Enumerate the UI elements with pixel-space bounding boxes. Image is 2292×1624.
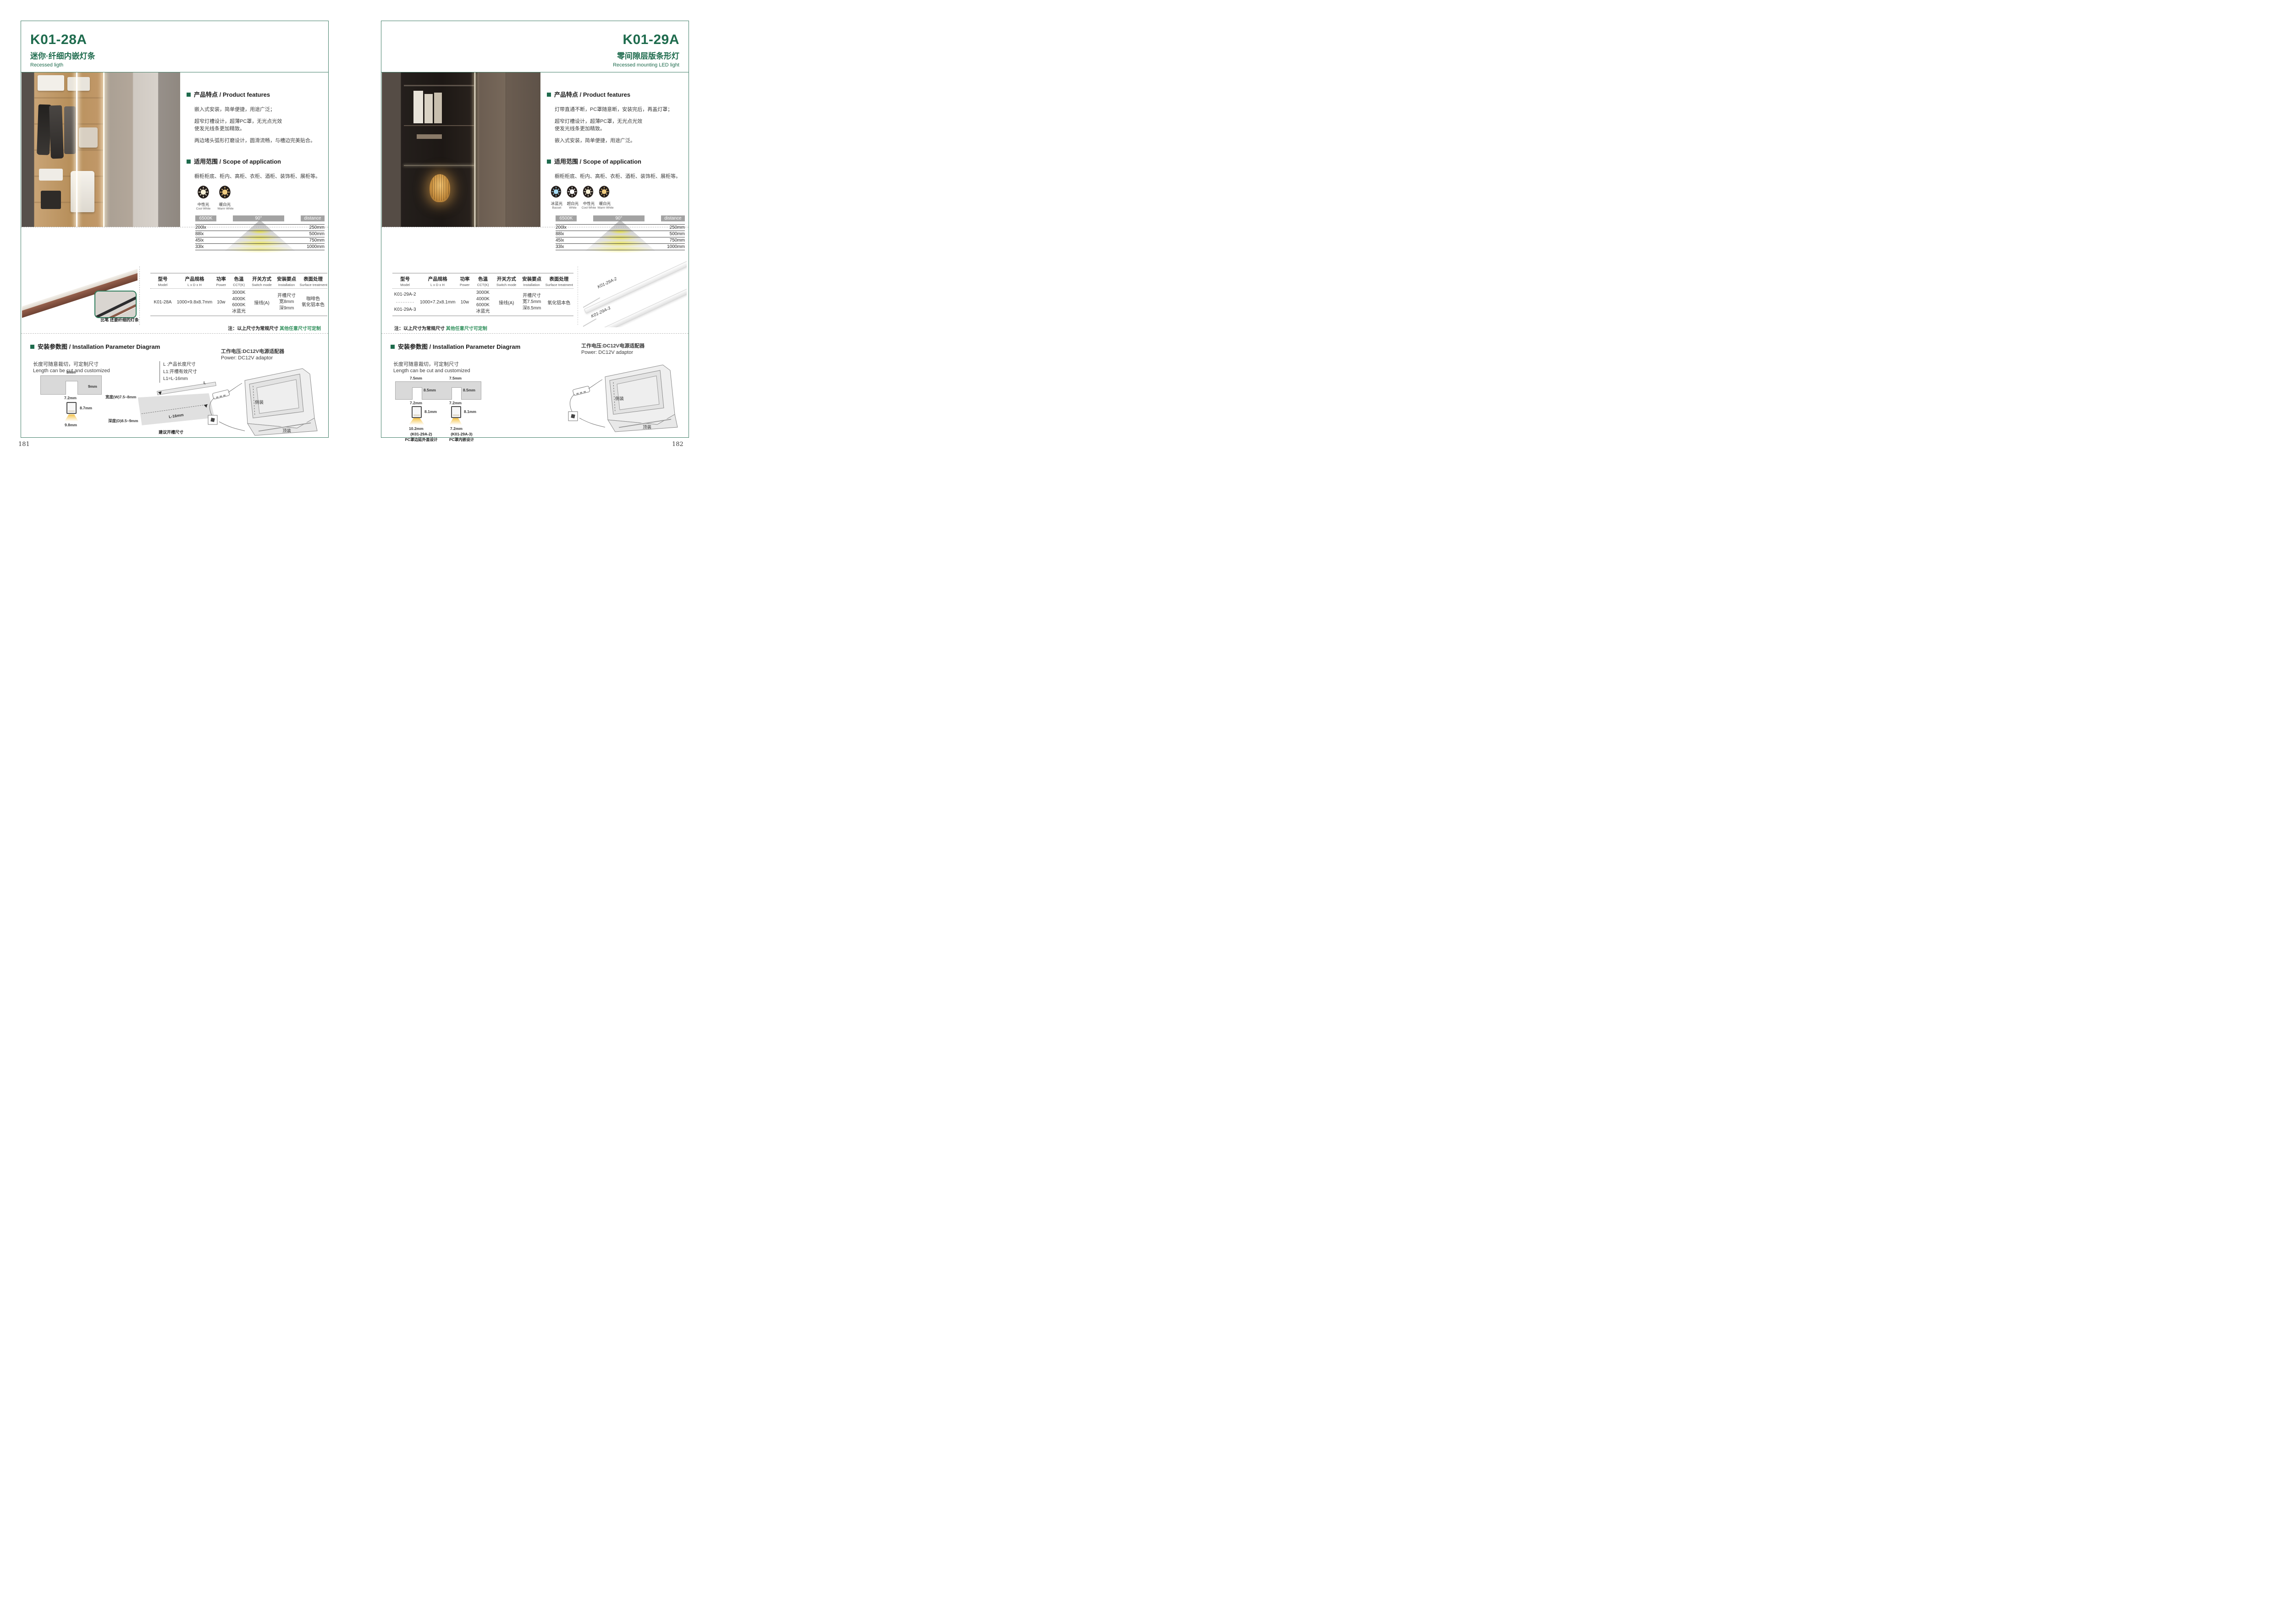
- feature-line: 灯带直通不断，PC罩随意断，安装完后，再盖灯罩；: [555, 105, 672, 113]
- lux-value: 200lx: [556, 225, 567, 230]
- dim-profile-height: 8.7mm: [80, 406, 92, 410]
- distance-row: 45lx750mm: [195, 237, 325, 243]
- power-cn: 工作电压:DC12V电源适配器: [581, 342, 645, 349]
- scope-heading: 适用范围 / Scope of application: [187, 157, 281, 165]
- col-header-power: 功率Power: [214, 275, 228, 287]
- photo-folded-clothes: [39, 169, 63, 181]
- distance-value: 1000mm: [667, 244, 685, 249]
- cct-badge: 6500K: [195, 215, 216, 221]
- table-border: [150, 315, 327, 316]
- panel-slot: [66, 381, 78, 395]
- size-note: 注：以上尺寸为常规尺寸 其他任意尺寸可定制: [228, 325, 321, 331]
- photo-object: [417, 134, 442, 139]
- col-header-size: 产品规格L x D x H: [418, 275, 457, 287]
- lux-value: 88lx: [556, 231, 564, 237]
- dim-slot-width: 8mm: [66, 370, 76, 374]
- feature-line: 超窄灯槽设计，超薄PC罩，无光点光效: [555, 117, 642, 125]
- photo-towels: [38, 75, 65, 91]
- dim-slot-width: 7.5mm: [410, 376, 422, 380]
- page-number-left: 181: [18, 441, 30, 448]
- model-divider: [396, 302, 414, 303]
- profile-section: [66, 402, 77, 414]
- spec-table: 型号Model 产品规格L x D x H 功率Power 色温CCT(K) 开…: [150, 273, 327, 316]
- spec-table: 型号Model 产品规格L x D x H 功率Power 色温CCT(K) 开…: [392, 273, 573, 316]
- profile-diffuser: [413, 414, 420, 416]
- photo-coat: [64, 106, 75, 154]
- col-header-surface: 表面处理Surface treatment: [299, 275, 327, 287]
- features-heading-label: 产品特点 / Product features: [554, 91, 630, 98]
- length-legend: L :产品长度尺寸 L1:开槽有效尺寸 L1=L-16mm: [160, 361, 197, 383]
- dim-slot-width: 7.5mm: [449, 376, 462, 380]
- section-divider: [21, 333, 328, 334]
- cabinet-diagram: 侧装 顶装: [566, 360, 688, 435]
- table-border: [392, 315, 573, 316]
- bullet-square-icon: [547, 160, 551, 164]
- photo-led-strip-glow: [474, 72, 475, 227]
- dim-profile-width: 7.2mm: [449, 401, 462, 405]
- lux-value: 200lx: [195, 225, 206, 230]
- light-mode-label-cn: 中性光: [195, 202, 211, 207]
- col-header-power: 功率Power: [457, 275, 472, 287]
- page-left-title-block: K01-28A 迷你·纤细内嵌灯条 Recessed ligth: [30, 33, 95, 68]
- photo-bag: [79, 127, 98, 148]
- bulb-icon: [597, 184, 612, 200]
- photo-book: [434, 93, 442, 123]
- distance-badge: distance: [301, 215, 325, 221]
- xsec-caption-model: (K01-29A-2): [401, 432, 442, 436]
- lux-value: 33lx: [556, 244, 564, 249]
- cct-badge: 6500K: [556, 215, 577, 221]
- col-header-cct: 色温CCT(K): [472, 275, 494, 287]
- left-product-photo: [22, 72, 180, 227]
- features-heading: 产品特点 / Product features: [187, 90, 270, 99]
- lux-value: 33lx: [195, 244, 204, 249]
- table-data-row: K01-28A 1000×9.8x8.7mm 10w 3000K4000K600…: [150, 289, 327, 315]
- legend-line: L1:开槽有效尺寸: [163, 369, 197, 376]
- right-product-photo: [382, 72, 540, 227]
- col-header-install: 安装要点Installation: [519, 275, 544, 287]
- cut-note-cn: 长度可随意裁切，可定制尺寸: [33, 360, 99, 368]
- cut-note-cn: 长度可随意裁切，可定制尺寸: [393, 360, 459, 368]
- beam-angle-badge: 90°: [593, 215, 645, 221]
- photo-vase-ribs: [430, 174, 450, 200]
- light-mode-label-en: Cool White: [581, 206, 596, 209]
- bulb-icon: [549, 184, 563, 200]
- light-mode-white: 超白光 White: [565, 184, 581, 209]
- col-header-surface: 表面处理Surface treatment: [545, 275, 573, 287]
- distance-row: 88lx500mm: [556, 231, 685, 237]
- light-mode-cool-white: 中性光 Cool White: [581, 184, 597, 209]
- distance-chart: 6500K 90° distance 200lx250mm 88lx500mm …: [195, 215, 325, 250]
- bullet-square-icon: [187, 93, 191, 97]
- dim-groove-depth: 深度(D)8.5~9mm: [108, 418, 138, 424]
- dim-profile-height: 8.1mm: [424, 409, 437, 414]
- note-highlight: 其他任意尺寸可定制: [280, 326, 321, 331]
- cell-power: 10w: [214, 300, 228, 305]
- bulb-icon: [195, 184, 211, 201]
- bullet-square-icon: [30, 345, 34, 349]
- photo-towels: [67, 77, 89, 91]
- feature-line: 使发光线条更加精致。: [555, 125, 605, 132]
- table-header-row: 型号Model 产品规格L x D x H 功率Power 色温CCT(K) 开…: [392, 274, 573, 288]
- bullet-square-icon: [547, 93, 551, 97]
- photo-shelf-line: [404, 125, 474, 126]
- bulb-icon: [581, 184, 595, 200]
- distance-rows: 200lx250mm 88lx500mm 45lx750mm 33lx1000m…: [556, 224, 685, 250]
- side-mount-label: 侧装: [615, 395, 624, 402]
- install-heading: 安装参数图 / Installation Parameter Diagram: [30, 342, 160, 351]
- scope-text: 橱柜柜底、柜内、高柜、衣柜、酒柜、装饰柜、展柜等。: [555, 172, 681, 180]
- light-mode-label-cn: 超白光: [565, 201, 581, 206]
- install-heading-label: 安装参数图 / Installation Parameter Diagram: [398, 343, 520, 350]
- panel-slot: [412, 387, 422, 400]
- lux-value: 88lx: [195, 231, 204, 237]
- strip-model-label: K01-29A-2: [597, 276, 618, 290]
- light-mode-label-cn: 暖白光: [217, 202, 233, 207]
- photo-led-line: [404, 86, 474, 86]
- distance-row: 200lx250mm: [195, 224, 325, 231]
- distance-row: 45lx750mm: [556, 237, 685, 243]
- light-cone: [65, 414, 78, 421]
- dim-bottom-width: 10.2mm: [409, 426, 424, 431]
- light-cone: [409, 418, 424, 425]
- distance-row: 200lx250mm: [556, 224, 685, 231]
- light-mode-icons: 中性光 Cool White 暖白光 Warm White: [195, 184, 233, 210]
- table-data-row: K01-29A-2K01-29A-3 1000×7.2x8.1mm 10w 30…: [392, 289, 573, 315]
- col-header-install: 安装要点Installation: [274, 275, 299, 287]
- photo-led-strip-glow: [76, 72, 77, 227]
- light-cone: [449, 418, 462, 425]
- cell-surface: 氧化铝本色: [545, 299, 573, 306]
- feature-line: 嵌入式安装，简单便捷，用途广泛；: [194, 105, 275, 113]
- lux-value: 45lx: [195, 238, 204, 243]
- page-title: K01-29A: [613, 33, 679, 47]
- strip-caption: 比笔 还要纤细的灯条: [90, 317, 149, 323]
- dim-slot-depth: 8.5mm: [463, 388, 475, 392]
- dim-bottom-width: 7.2mm: [450, 426, 463, 431]
- light-mode-label-cn: 冰蓝光: [549, 201, 565, 206]
- dim-groove-width: 宽度(W)7.5~8mm: [105, 394, 136, 400]
- page-title: K01-28A: [30, 33, 95, 47]
- table-header-row: 型号Model 产品规格L x D x H 功率Power 色温CCT(K) 开…: [150, 274, 327, 288]
- legend-line: L1=L-16mm: [163, 375, 197, 383]
- distance-row: 33lx1000mm: [556, 243, 685, 250]
- photo-book: [424, 94, 432, 123]
- feature-line: 使发光线条更加精致。: [194, 125, 245, 132]
- distance-value: 750mm: [670, 238, 685, 243]
- page-left: K01-28A 迷你·纤细内嵌灯条 Recessed ligth 产品特点 / …: [21, 21, 329, 438]
- bulb-icon: [217, 184, 233, 201]
- top-mount-label: 顶装: [643, 424, 651, 430]
- cabinet-diagram: 侧装 顶装: [205, 364, 327, 436]
- photo-coat: [37, 105, 51, 155]
- board-3d: [133, 393, 215, 428]
- distance-badge: distance: [661, 215, 685, 221]
- size-note: 注：以上尺寸为常规尺寸 其他任意尺寸可定制: [394, 325, 487, 331]
- photo-pillow: [71, 171, 94, 212]
- bulb-icon: [565, 184, 579, 200]
- legend-line: L :产品长度尺寸: [163, 361, 197, 369]
- light-mode-warm-white: 暖白光 Warm White: [597, 184, 613, 209]
- page-number-right: 182: [672, 441, 683, 448]
- light-mode-label-en: Basset: [549, 206, 564, 209]
- feature-line: 超窄灯槽设计，超薄PC罩，无光点光效: [194, 117, 282, 125]
- cell-switch: 接线(A): [249, 299, 274, 306]
- photo-book: [413, 91, 423, 123]
- cell-install: 开槽尺寸宽7.5mm深8.5mm: [519, 293, 544, 312]
- section-divider: [381, 333, 689, 334]
- profile-diffuser: [453, 414, 459, 416]
- profile-section: [412, 406, 422, 418]
- distance-chart: 6500K 90° distance 200lx250mm 88lx500mm …: [556, 215, 685, 250]
- power-cn: 工作电压:DC12V电源适配器: [221, 347, 284, 355]
- page-right: K01-29A 零间隙层版条形灯 Recessed mounting LED l…: [381, 21, 689, 438]
- cell-model: K01-29A-2K01-29A-3: [392, 292, 418, 313]
- side-mount-label: 侧装: [255, 399, 264, 405]
- note-prefix: 注：以上尺寸为常规尺寸: [228, 326, 280, 331]
- scope-heading-label: 适用范围 / Scope of application: [554, 158, 641, 165]
- distance-value: 250mm: [670, 225, 685, 230]
- groove-caption: 建议开槽尺寸: [159, 429, 183, 435]
- power-en: Power: DC12V adaptor: [221, 355, 273, 361]
- dim-profile-width: 7.2mm: [410, 401, 422, 405]
- panel-slot: [452, 387, 462, 400]
- cabinet-drawing: [566, 360, 688, 435]
- cell-model: K01-28A: [150, 300, 175, 305]
- dim-slot-depth: 9mm: [88, 384, 97, 389]
- feature-line: 两边堵头弧形打磨设计，圆滑流畅，与槽边完美贴合。: [194, 137, 315, 144]
- light-mode-cool-white: 中性光 Cool White: [195, 184, 211, 210]
- scope-heading-label: 适用范围 / Scope of application: [194, 158, 281, 165]
- page-right-title-block: K01-29A 零间隙层版条形灯 Recessed mounting LED l…: [613, 33, 679, 68]
- distance-value: 500mm: [309, 231, 325, 237]
- dim-bottom-width: 9.8mm: [65, 423, 77, 427]
- light-mode-label-en: Warm White: [597, 206, 612, 209]
- light-mode-label-en: White: [565, 206, 580, 209]
- light-mode-warm-white: 暖白光 Warm White: [217, 184, 233, 210]
- page-subtitle-en: Recessed mounting LED light: [613, 62, 679, 68]
- col-header-switch: 开关方式Switch mode: [249, 275, 274, 287]
- photo-background: [382, 72, 540, 227]
- cell-switch: 接线(A): [494, 299, 519, 306]
- distance-chart-body: 200lx250mm 88lx500mm 45lx750mm 33lx1000m…: [195, 224, 325, 250]
- vertical-divider: [578, 266, 578, 325]
- light-mode-label-cn: 中性光: [581, 201, 597, 206]
- profile-section: [451, 406, 461, 418]
- xsec-caption-desc: PC罩内嵌设计: [438, 437, 485, 442]
- install-heading: 安装参数图 / Installation Parameter Diagram: [391, 342, 520, 351]
- photo-led-strip-glow: [103, 72, 105, 227]
- photo-panel-seam: [158, 72, 159, 227]
- lux-value: 45lx: [556, 238, 564, 243]
- bullet-square-icon: [391, 345, 395, 349]
- distance-value: 500mm: [670, 231, 685, 237]
- page-subtitle-cn: 零间隙层版条形灯: [613, 50, 679, 61]
- top-mount-label: 顶装: [282, 427, 291, 434]
- note-prefix: 注：以上尺寸为常规尺寸: [394, 326, 446, 331]
- cell-cct: 3000K4000K6000K冰蓝光: [472, 290, 494, 314]
- col-header-cct: 色温CCT(K): [228, 275, 249, 287]
- distance-value: 1000mm: [307, 244, 325, 249]
- page-subtitle-en: Recessed ligth: [30, 62, 95, 68]
- photo-box: [41, 191, 61, 209]
- photo-coat: [49, 105, 64, 159]
- note-highlight: 其他任意尺寸可定制: [446, 326, 487, 331]
- cell-power: 10w: [457, 300, 472, 305]
- power-en: Power: DC12V adaptor: [581, 350, 633, 355]
- cell-size: 1000×7.2x8.1mm: [418, 300, 457, 305]
- install-heading-label: 安装参数图 / Installation Parameter Diagram: [38, 343, 160, 350]
- cell-surface: 咖啡色氧化铝本色: [299, 296, 327, 308]
- pen-comparison-inset: [94, 291, 137, 318]
- scope-text: 橱柜柜底、柜内、高柜、衣柜、酒柜、装饰柜、展柜等。: [194, 172, 320, 180]
- photo-panel-seam: [506, 72, 506, 227]
- distance-chart-body: 200lx250mm 88lx500mm 45lx750mm 33lx1000m…: [556, 224, 685, 250]
- distance-row: 33lx1000mm: [195, 243, 325, 250]
- beam-angle-badge: 90°: [233, 215, 284, 221]
- light-mode-label-en: Warm White: [217, 207, 232, 210]
- strip-cord: [583, 319, 596, 327]
- light-mode-label-en: Cool White: [196, 207, 210, 210]
- dim-slot-depth: 8.5mm: [424, 388, 436, 392]
- col-header-switch: 开关方式Switch mode: [494, 275, 519, 287]
- cut-note-en: Length can be cut and customized: [393, 368, 470, 374]
- light-mode-icons: 冰蓝光 Basset 超白光 White 中性光 Cool White: [549, 184, 613, 209]
- light-mode-label-cn: 暖白光: [597, 201, 613, 206]
- light-mode-ice-blue: 冰蓝光 Basset: [549, 184, 565, 209]
- profile-diffuser: [68, 410, 75, 412]
- strip-product-photo: [22, 262, 138, 323]
- xsec-caption-model: (K01-29A-3): [441, 432, 482, 436]
- cabinet-drawing: [205, 364, 327, 436]
- scope-heading: 适用范围 / Scope of application: [547, 157, 641, 165]
- distance-row: 88lx500mm: [195, 231, 325, 237]
- distance-value: 750mm: [309, 238, 325, 243]
- col-header-model: 型号Model: [392, 275, 418, 287]
- vertical-divider: [139, 266, 140, 325]
- cell-cct: 3000K4000K6000K冰蓝光: [228, 290, 249, 314]
- strip-product-photo: K01-29A-2 K01-29A-3: [583, 259, 687, 327]
- dim-profile-width-top: 7.2mm: [64, 396, 77, 400]
- catalog-spread: K01-28A 迷你·纤细内嵌灯条 Recessed ligth 产品特点 / …: [0, 0, 707, 461]
- distance-rows: 200lx250mm 88lx500mm 45lx750mm 33lx1000m…: [195, 224, 325, 250]
- photo-glass-shelf: [404, 165, 474, 166]
- bullet-square-icon: [187, 160, 191, 164]
- features-heading: 产品特点 / Product features: [547, 90, 630, 99]
- dim-profile-height: 8.1mm: [464, 409, 476, 414]
- distance-value: 250mm: [309, 225, 325, 230]
- col-header-model: 型号Model: [150, 275, 175, 287]
- features-heading-label: 产品特点 / Product features: [194, 91, 270, 98]
- col-header-size: 产品规格L x D x H: [175, 275, 214, 287]
- cell-size: 1000×9.8x8.7mm: [175, 300, 214, 305]
- cell-install: 开槽尺寸宽8mm深9mm: [274, 293, 299, 312]
- feature-line: 嵌入式安装，简单便捷，用途广泛。: [555, 137, 635, 144]
- page-subtitle-cn: 迷你·纤细内嵌灯条: [30, 50, 95, 61]
